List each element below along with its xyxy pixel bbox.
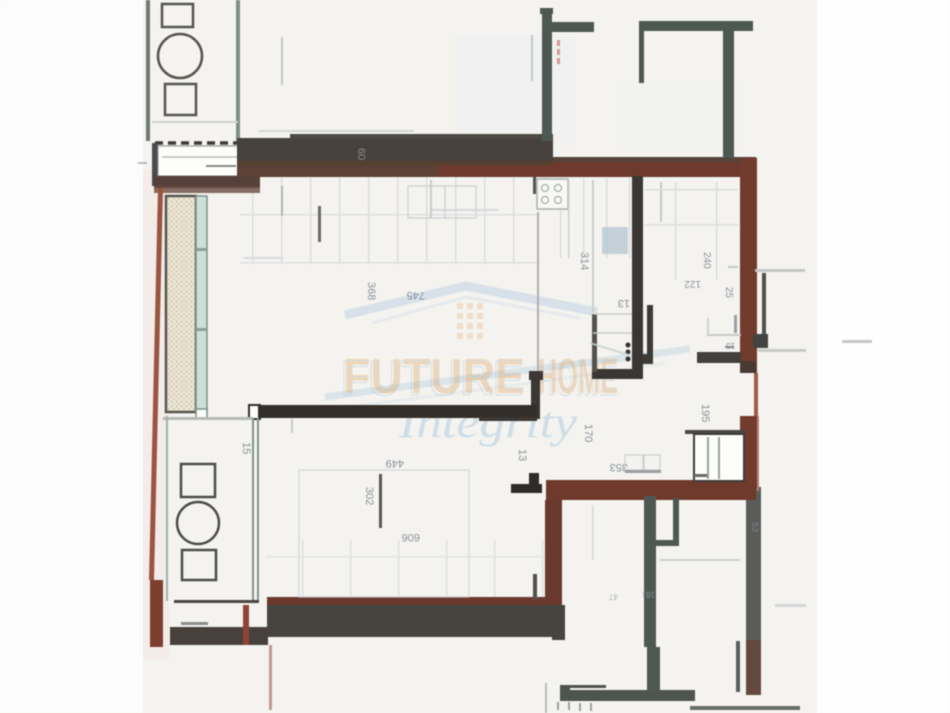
svg-text:60: 60 bbox=[355, 148, 367, 160]
svg-text:240: 240 bbox=[701, 252, 712, 269]
svg-text:195: 195 bbox=[699, 404, 711, 422]
svg-text:47: 47 bbox=[609, 592, 618, 601]
svg-text:15: 15 bbox=[240, 442, 252, 454]
svg-text:13: 13 bbox=[726, 341, 735, 350]
svg-text:368: 368 bbox=[365, 282, 377, 300]
svg-text:745: 745 bbox=[407, 289, 425, 301]
svg-text:314: 314 bbox=[578, 252, 590, 270]
svg-text:449: 449 bbox=[386, 457, 404, 469]
svg-text:25: 25 bbox=[723, 287, 734, 299]
svg-text:13: 13 bbox=[516, 449, 528, 461]
svg-text:53: 53 bbox=[750, 522, 760, 532]
svg-text:122: 122 bbox=[684, 278, 701, 289]
svg-text:606: 606 bbox=[402, 531, 420, 543]
svg-text:302: 302 bbox=[363, 487, 375, 505]
svg-text:161: 161 bbox=[641, 590, 655, 599]
svg-text:170: 170 bbox=[582, 424, 594, 442]
svg-text:13: 13 bbox=[618, 297, 630, 309]
